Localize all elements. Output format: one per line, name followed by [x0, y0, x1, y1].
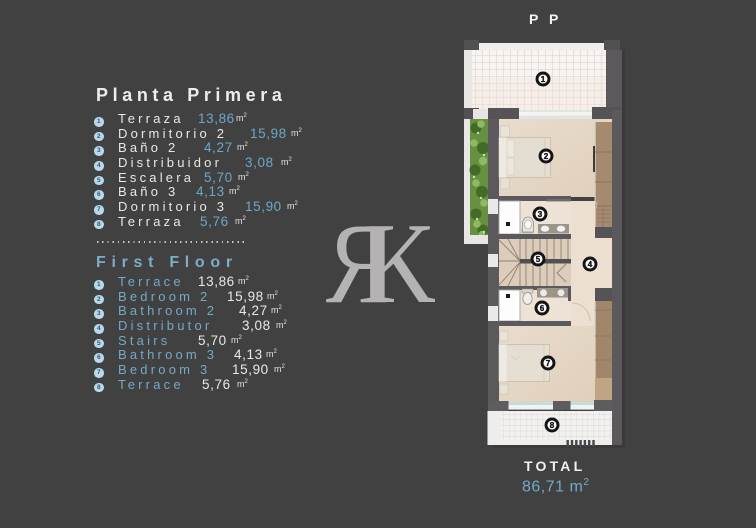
svg-text:6: 6 — [540, 304, 545, 313]
svg-text:K: K — [364, 200, 436, 320]
svg-text:1: 1 — [541, 75, 546, 84]
svg-text:5: 5 — [536, 255, 541, 264]
svg-text:8: 8 — [550, 421, 555, 430]
svg-text:7: 7 — [546, 359, 551, 368]
svg-text:2: 2 — [544, 152, 549, 161]
svg-text:3: 3 — [538, 210, 543, 219]
svg-text:4: 4 — [588, 260, 593, 269]
